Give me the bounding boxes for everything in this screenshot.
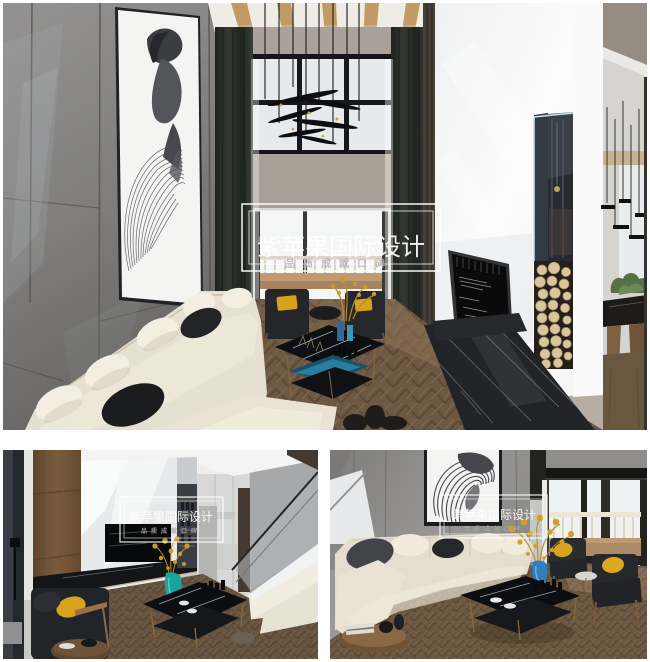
svg-text:品质成就口碑: 品质成就口碑	[464, 525, 524, 533]
svg-text:紫苹果国际设计: 紫苹果国际设计	[452, 508, 536, 522]
svg-text:品质成就口碑: 品质成就口碑	[141, 527, 201, 535]
svg-text:紫苹果国际设计: 紫苹果国际设计	[129, 510, 213, 524]
svg-text:紫苹果国际设计: 紫苹果国际设计	[257, 234, 425, 261]
svg-text:品质成就口碑: 品质成就口碑	[285, 257, 393, 270]
